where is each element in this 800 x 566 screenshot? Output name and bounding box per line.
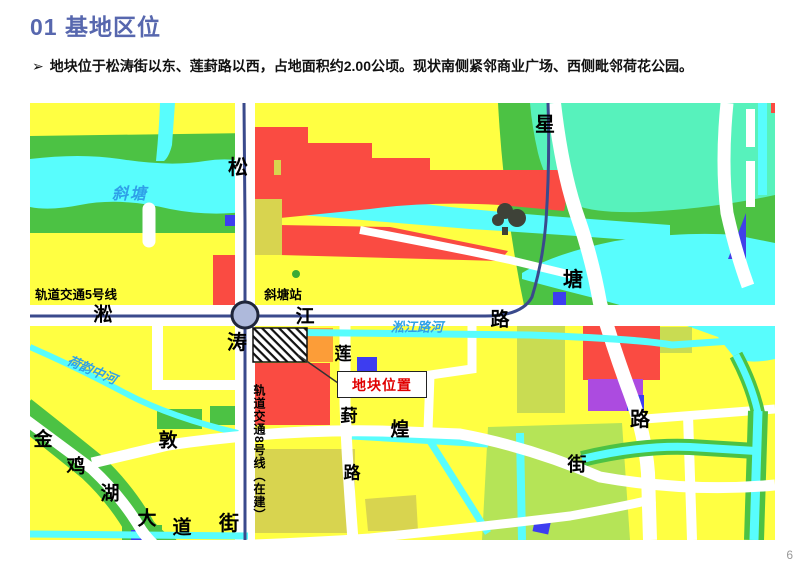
road-char-xingtang-2: 塘: [563, 270, 583, 290]
road-char-jinjihu-5: 道: [172, 519, 191, 538]
road-char-jinjihu-2: 鸡: [66, 458, 85, 477]
location-map: 轨道交通5号线 斜塘站 轨道交通8号线（在建） 斜塘 淞江路河 荷韵中河 松 涛…: [30, 103, 775, 540]
road-char-jinjihu-4: 大: [137, 510, 156, 529]
road-char-lianfeng-2: 葑: [341, 408, 358, 425]
road-char-songjiang-3: 路: [490, 311, 509, 330]
metro-station-marker: [232, 302, 258, 328]
road-char-lianfeng-1: 莲: [335, 346, 352, 363]
road-char-xingtang-1: 星: [535, 115, 555, 135]
road-char-lianfeng-3: 路: [344, 465, 361, 482]
rail-line8-label: 轨道交通8号线（在建）: [251, 384, 268, 522]
river-label-xietang: 斜塘: [112, 187, 148, 203]
road-char-jinjihu-3: 湖: [100, 485, 119, 504]
intro-paragraph: ➢地块位于松涛街以东、莲葑路以西，占地面积约2.00公顷。现状南侧紧邻商业广场、…: [32, 57, 772, 75]
road-char-xingtang-3: 路: [630, 410, 650, 430]
road-char-dunhuang-1: 敦: [158, 432, 177, 451]
rail-line5-label: 轨道交通5号线: [35, 289, 117, 302]
road-char-songjiang-1: 淞: [93, 306, 112, 325]
road-char-songtao-2: 涛: [227, 333, 247, 353]
page-title: 01 基地区位: [30, 8, 161, 42]
page-number: 6: [786, 548, 793, 562]
site-parcel-hatched: [253, 328, 307, 362]
road-char-dunhuang-2: 煌: [390, 421, 409, 440]
road-char-dunhuang-3: 街: [567, 456, 586, 475]
tree-icon: [292, 270, 300, 278]
station-label: 斜塘站: [264, 289, 302, 302]
road-char-jinjihu-1: 金: [33, 431, 52, 450]
road-char-songjiang-2: 江: [295, 308, 314, 327]
slide: 01 基地区位 ➢地块位于松涛街以东、莲葑路以西，占地面积约2.00公顷。现状南…: [0, 0, 800, 566]
road-char-songtao-3: 街: [219, 514, 239, 534]
bullet-marker: ➢: [32, 58, 44, 74]
road-char-songtao-1: 松: [228, 158, 248, 178]
river-label-songjiang: 淞江路河: [391, 321, 443, 334]
site-callout-label: 地块位置: [337, 371, 427, 398]
intro-text: 地块位于松涛街以东、莲葑路以西，占地面积约2.00公顷。现状南侧紧邻商业广场、西…: [50, 58, 693, 74]
